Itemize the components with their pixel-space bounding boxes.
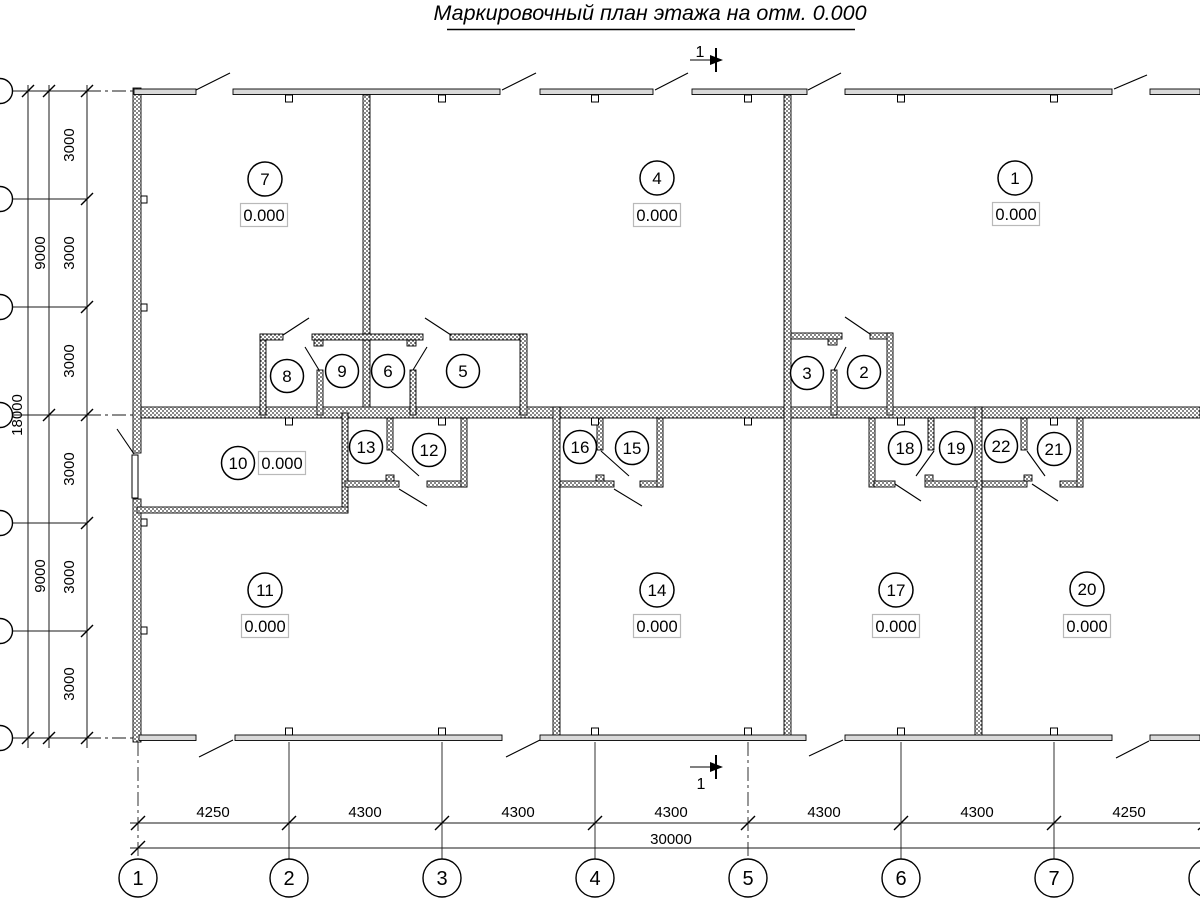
room-mark-18: 18	[896, 439, 915, 458]
dim-bottom-2: 4300	[348, 804, 381, 821]
elevation-room-14: 0.000	[636, 618, 677, 636]
room-mark-11: 11	[256, 581, 274, 600]
room-mark-20: 20	[1078, 580, 1097, 599]
room-mark-21: 21	[1045, 440, 1064, 459]
elevation-room-7: 0.000	[243, 207, 284, 225]
room-mark-3: 3	[802, 364, 811, 383]
elevation-room-11: 0.000	[244, 618, 285, 636]
elevation-room-10: 0.000	[261, 455, 302, 473]
dim-bottom-1: 4250	[196, 804, 229, 821]
section-label-top: 1	[696, 44, 705, 61]
entrance-door-leaf	[132, 455, 138, 498]
room-mark-13: 13	[357, 438, 376, 457]
axis-label-4: 4	[589, 868, 600, 890]
dim-bottom-total: 30000	[650, 831, 692, 848]
room-mark-6: 6	[383, 362, 392, 381]
dim-bottom-5: 4300	[807, 804, 840, 821]
axis-label-5: 5	[742, 868, 753, 890]
axis-label-6: 6	[895, 868, 906, 890]
room-mark-2: 2	[859, 363, 868, 382]
axis-label-7: 7	[1048, 868, 1059, 890]
room-mark-19: 19	[947, 439, 966, 458]
title-text: Маркировочный план этажа на отм. 0.000	[433, 1, 866, 25]
room-mark-10: 10	[229, 454, 248, 473]
dim-left-3000-6: 3000	[61, 667, 78, 700]
floor-plan-drawing: Маркировочный план этажа на отм. 0.000	[0, 0, 1200, 900]
elevation-room-4: 0.000	[636, 207, 677, 225]
axis-label-2: 2	[283, 868, 294, 890]
dim-left-9000-2: 9000	[32, 559, 49, 592]
dim-left-3000-5: 3000	[61, 560, 78, 593]
elevation-room-20: 0.000	[1066, 618, 1107, 636]
room-mark-5: 5	[458, 362, 467, 381]
room-mark-22: 22	[992, 437, 1011, 456]
section-label-bottom: 1	[697, 776, 706, 793]
room-mark-7: 7	[260, 170, 269, 189]
dim-left-9000-1: 9000	[32, 236, 49, 269]
axis-label-3: 3	[436, 868, 447, 890]
dim-bottom-7: 4250	[1112, 804, 1145, 821]
dim-left-3000-1: 3000	[61, 128, 78, 161]
room-mark-17: 17	[887, 581, 906, 600]
room-mark-12: 12	[420, 441, 439, 460]
room-mark-15: 15	[623, 439, 642, 458]
room-mark-8: 8	[282, 367, 291, 386]
room-mark-1: 1	[1010, 169, 1019, 188]
room-mark-14: 14	[648, 581, 667, 600]
dim-left-3000-2: 3000	[61, 236, 78, 269]
room-mark-4: 4	[652, 169, 661, 188]
elevation-room-1: 0.000	[995, 206, 1036, 224]
axis-label-1: 1	[132, 868, 143, 890]
dim-left-3000-3: 3000	[61, 344, 78, 377]
dim-bottom-4: 4300	[654, 804, 687, 821]
dim-bottom-3: 4300	[501, 804, 534, 821]
dim-left-3000-4: 3000	[61, 452, 78, 485]
elevation-room-17: 0.000	[875, 618, 916, 636]
dim-bottom-6: 4300	[960, 804, 993, 821]
room-mark-16: 16	[571, 438, 590, 457]
room-mark-9: 9	[337, 362, 346, 381]
